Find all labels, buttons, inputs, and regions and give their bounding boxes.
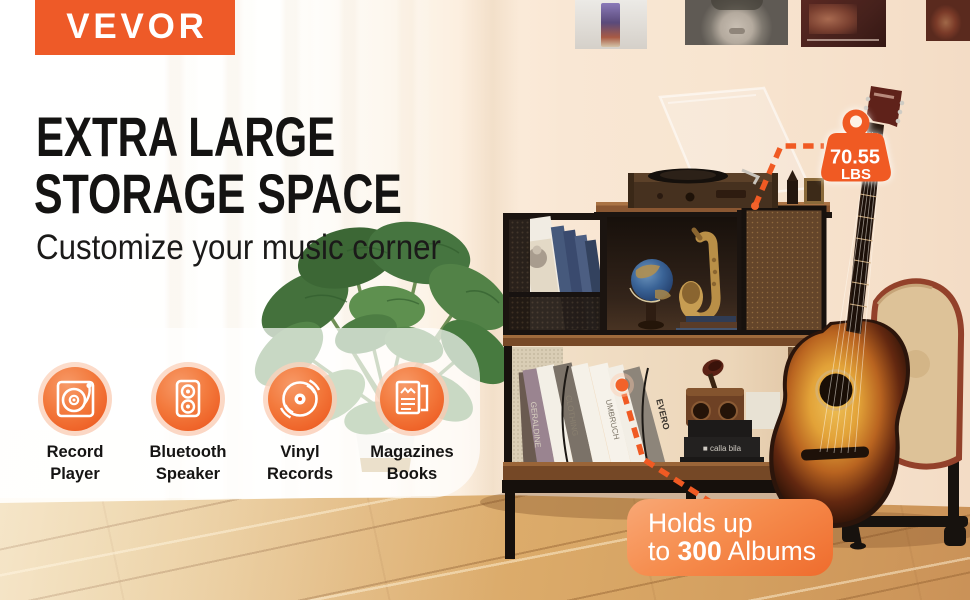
svg-text:■ calla bila: ■ calla bila (703, 444, 742, 453)
svg-text:LBS: LBS (841, 166, 871, 183)
